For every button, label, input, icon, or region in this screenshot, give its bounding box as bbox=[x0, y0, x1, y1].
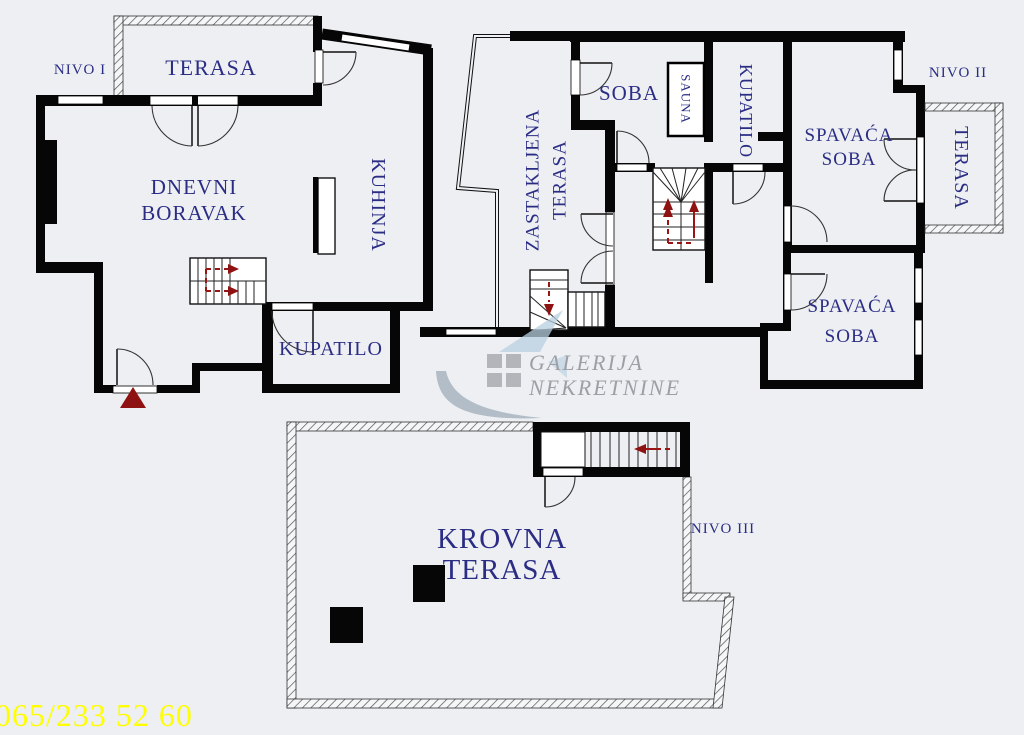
staircase-level2 bbox=[653, 168, 705, 250]
room-label-spavaca2-line2: SOBA bbox=[825, 326, 880, 347]
room-label-spavaca2-line1: SPAVAĆA bbox=[807, 295, 896, 317]
room-label-spavaca1-line2: SOBA bbox=[822, 149, 877, 170]
room-label-soba: SOBA bbox=[599, 81, 659, 105]
chimney-block bbox=[330, 607, 363, 643]
room-label-dnevni-line1: DNEVNI bbox=[151, 175, 237, 199]
floorplan-page: NIVO I TERASA DNEVNI BORAVAK KUHINJA KUP… bbox=[0, 0, 1024, 735]
roof-stair-door-sill bbox=[543, 468, 583, 476]
window bbox=[894, 50, 902, 80]
balcony-doors-sill bbox=[606, 212, 614, 285]
corridor-door-sill bbox=[617, 164, 647, 171]
kitchen-counter bbox=[318, 178, 335, 254]
room-label-terasa1: TERASA bbox=[165, 55, 257, 80]
watermark-text-line1: GALERIJA bbox=[529, 350, 644, 375]
level3-label: NIVO III bbox=[691, 521, 755, 537]
spavaca2-door-sill bbox=[784, 274, 791, 310]
kupatilo1-door-sill bbox=[272, 303, 313, 310]
room-label-zastakljena-line2: TERASA bbox=[550, 140, 571, 220]
room-label-krovna-line2: TERASA bbox=[443, 554, 562, 586]
kupatilo2-door-sill bbox=[733, 164, 763, 171]
watermark-text-line2: NEKRETNINE bbox=[528, 375, 681, 400]
level1-label: NIVO I bbox=[54, 62, 106, 78]
room-label-zastakljena-line1: ZASTAKLJENA bbox=[523, 109, 544, 251]
staircase-level1 bbox=[190, 258, 266, 304]
kitchen-terasa-door-sill bbox=[315, 50, 323, 83]
room-label-sauna: SAUNA bbox=[679, 74, 694, 124]
window bbox=[446, 329, 496, 335]
window bbox=[58, 96, 103, 104]
room-label-dnevni-line2: BORAVAK bbox=[141, 201, 246, 225]
soba-door-sill bbox=[571, 60, 580, 95]
room-label-krovna-line1: KROVNA bbox=[437, 523, 567, 555]
window bbox=[915, 268, 922, 303]
room-label-kupatilo2: KUPATILO bbox=[736, 64, 756, 158]
chimney-block bbox=[413, 565, 445, 602]
room-label-kuhinja: KUHINJA bbox=[367, 158, 389, 252]
spavaca1-door-sill bbox=[784, 206, 791, 242]
room-label-spavaca1-line1: SPAVAĆA bbox=[804, 124, 893, 146]
window bbox=[915, 320, 922, 355]
stair-landing bbox=[541, 432, 585, 467]
floorplan-svg: NIVO I TERASA DNEVNI BORAVAK KUHINJA KUP… bbox=[0, 0, 1024, 735]
level2-label: NIVO II bbox=[929, 65, 987, 81]
room-label-kupatilo1: KUPATILO bbox=[279, 338, 383, 360]
room-label-terasa2: TERASA bbox=[950, 126, 972, 210]
phone-number: 065/233 52 60 bbox=[0, 697, 193, 733]
terasa2-doors-sill bbox=[917, 137, 924, 203]
